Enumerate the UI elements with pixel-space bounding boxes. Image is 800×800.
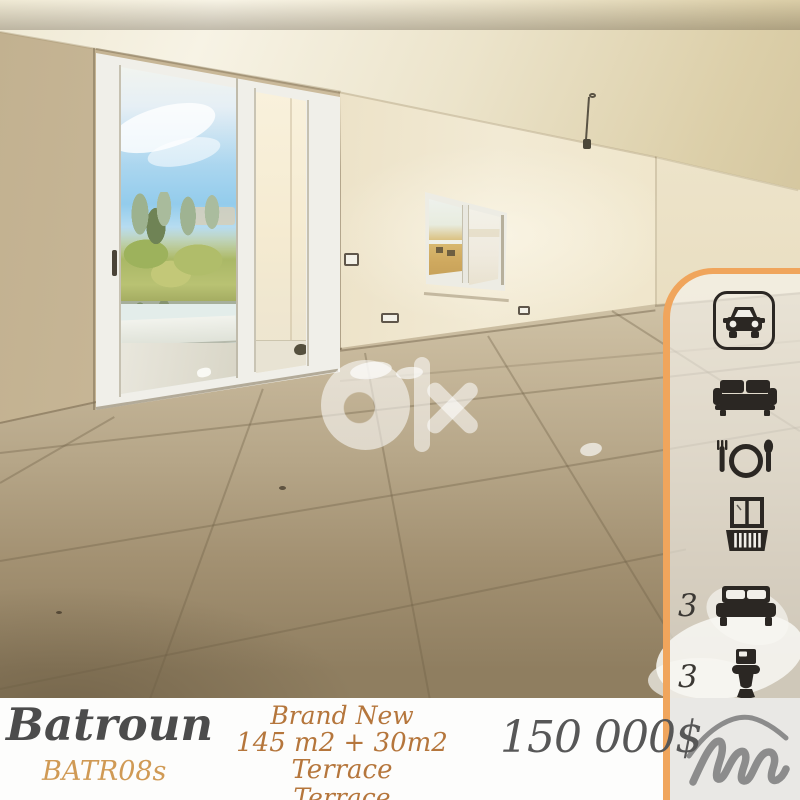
description-line: 145 m2 + 30m2 Terrace [182,730,502,785]
terrace-wall-corner [290,92,292,342]
dining-icon [715,438,777,482]
wall-socket [381,313,399,323]
feature-panel: 3 3 [663,268,800,698]
price: 150 000$ [500,712,710,763]
bathroom-count: 3 [678,662,708,693]
door-frame-shadow [93,48,95,410]
door-glass-left [121,67,236,394]
toilet-icon [728,648,764,700]
door-handle [112,250,117,276]
building-band [429,240,462,244]
door-frame-line [119,65,121,397]
floor-speck [279,486,286,490]
door-mullion [254,88,256,372]
description-block: Brand New 145 m2 + 30m2 Terrace Terrace [182,703,502,800]
bedroom-count: 3 [678,591,708,622]
bed-icon [714,585,778,629]
floor-speck [56,611,62,614]
door-frame-line [307,100,309,366]
trees [121,192,236,304]
description-line: Terrace [182,785,502,800]
window-frame-shadow [501,215,504,285]
terrace-debris [293,343,306,356]
lamp-hook [589,93,596,98]
reference-code: BATR08s [42,756,166,787]
wall-corner [655,157,657,305]
light-switch [344,253,359,266]
building-window [436,247,443,253]
building-band [469,229,500,237]
car-icon [720,300,768,342]
door-mullion [236,78,238,378]
door-glass-right [256,92,306,373]
sofa-icon [711,377,779,417]
terrace-floor [121,343,236,394]
window-mullion [462,205,469,283]
building-window [447,250,455,256]
sliding-glass-door [96,50,340,412]
wall-socket [518,306,530,315]
window-glass-left [429,199,462,279]
window-glass-right [469,209,500,285]
listing-card: Batroun BATR08s Brand New 145 m2 + 30m2 … [0,0,800,800]
lamp-socket [583,139,591,149]
balcony-icon [722,497,772,555]
parking-feature [713,291,775,350]
floor-shadow [0,0,800,30]
description-line: Brand New [182,703,502,730]
